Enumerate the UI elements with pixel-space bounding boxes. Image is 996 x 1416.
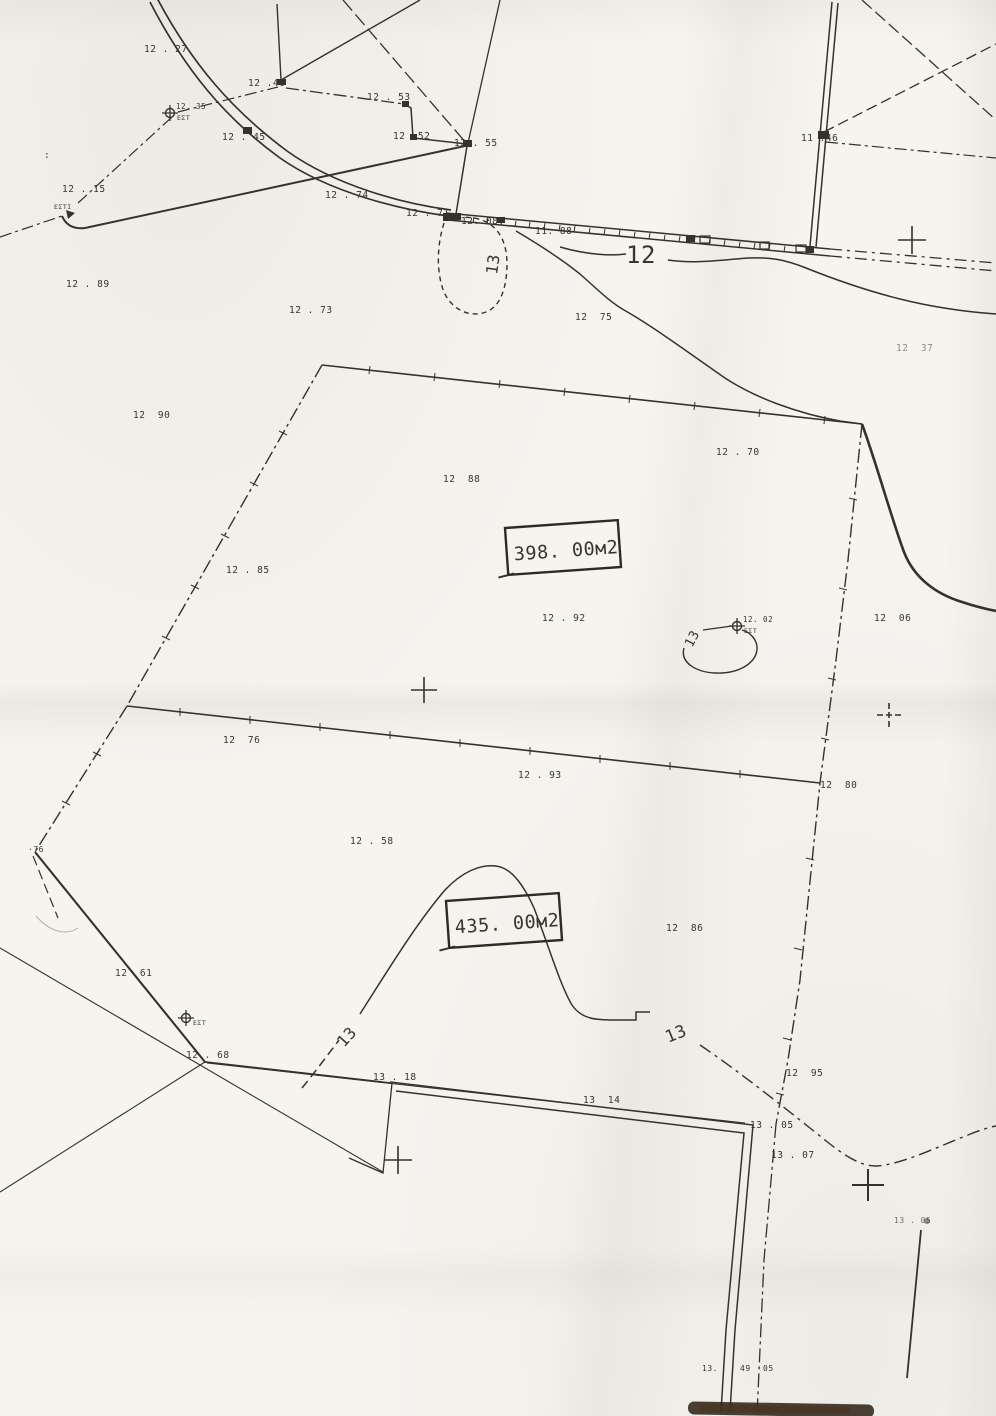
- benchmark-leader: [703, 626, 732, 630]
- elevation-label: 12 . 73: [289, 305, 333, 316]
- elevation-label: 12 06: [874, 613, 911, 624]
- area-box-435: 435. 00м2: [436, 893, 562, 950]
- benchmark-symbol: 12. 35ΕΣΤ: [162, 102, 206, 122]
- area-value-398: 398. 00м2: [513, 537, 619, 565]
- grid-cross-icon: [384, 1146, 412, 1174]
- elevation-label: 12 86: [666, 923, 703, 934]
- junction-arrow: [66, 210, 75, 219]
- scanned-survey-sheet: 398. 00м2 435. 00м2 12 . 2712 .4612 . 53…: [0, 0, 996, 1416]
- elevation-label: 11. 88: [535, 226, 572, 237]
- contour-label: 13: [333, 1023, 361, 1051]
- grid-cross-icon: [411, 677, 437, 703]
- benchmark-cross-icon: [178, 1010, 194, 1026]
- elevation-label: 12 . 89: [66, 279, 110, 290]
- scan-artifact: [688, 1401, 874, 1416]
- benchmark-name: ΕΣΤ: [744, 627, 757, 635]
- middle-line-ticks: [180, 708, 740, 778]
- elevation-label: 13.: [702, 1364, 718, 1373]
- elevation-label: 49: [740, 1364, 751, 1373]
- benchmark-elevation: 12. 35: [176, 102, 206, 111]
- elevation-label: 12. 08: [461, 216, 498, 227]
- main-road: [443, 213, 996, 271]
- generated-annotations: 12 . 2712 .4612 . 5312 .5212 . 5512 . 45…: [28, 44, 933, 1373]
- elevation-label: 12 95: [786, 1068, 823, 1079]
- elevation-label: 12 . 55: [454, 138, 498, 149]
- elevation-label: 12 .52: [393, 131, 430, 142]
- elevation-label: ·76: [28, 845, 44, 854]
- boundary-line-se: [907, 1230, 921, 1378]
- elevation-label: 13 . 18: [373, 1072, 417, 1083]
- contour-label: 13: [482, 253, 504, 276]
- benchmark-elevation: 12. 02: [743, 615, 773, 624]
- grid-cross-icon: [877, 703, 901, 727]
- grid-cross-icon: [852, 1169, 884, 1201]
- elevation-label: 12 . 71: [406, 208, 450, 219]
- elevation-label: 12 . 92: [542, 613, 586, 624]
- elevation-label: 12 . 45: [222, 132, 266, 143]
- elevation-label: 13 14: [583, 1095, 620, 1106]
- elevation-label: 12 . 27: [144, 44, 188, 55]
- survey-plan-drawing: 398. 00м2 435. 00м2 12 . 2712 .4612 . 53…: [0, 0, 996, 1416]
- elevation-label: 12 . 53: [367, 92, 411, 103]
- vertex-marks: [243, 79, 472, 147]
- contour-label: 13: [662, 1021, 689, 1048]
- elevation-label: 12 90: [133, 410, 170, 421]
- elevation-label: ΕΣΤΙ: [54, 203, 72, 211]
- elevation-label: 11 .46: [801, 133, 838, 144]
- left-edge-ticks: [162, 431, 287, 640]
- elevation-label: 13 . 05: [894, 1216, 931, 1225]
- elevation-label: 12 .46: [248, 78, 285, 89]
- northeast-boundary: [810, 0, 996, 247]
- elevation-label: 12 80: [820, 780, 857, 791]
- stream-thick-curve: [862, 424, 996, 611]
- elevation-label: :: [44, 150, 50, 161]
- area-box-398: 398. 00м2: [495, 520, 621, 577]
- elevation-label: 12 88: [443, 474, 480, 485]
- north-boundary-lines: [243, 0, 500, 214]
- elevation-label: 12 . 15: [62, 184, 106, 195]
- benchmark-symbol: ΕΣΤ: [178, 1010, 206, 1027]
- elevation-label: 12 37: [896, 343, 933, 354]
- elevation-label: 12 . 68: [186, 1050, 230, 1061]
- elevation-label: 12 75: [575, 312, 612, 323]
- benchmark-symbol: 12. 02ΕΣΤ: [729, 615, 773, 635]
- contour-label: 13: [682, 628, 703, 650]
- elevation-label: 12 . 85: [226, 565, 270, 576]
- elevation-label: 13 . 05: [750, 1120, 794, 1131]
- benchmark-name: ΕΣΤ: [193, 1019, 206, 1027]
- elevation-label: 12 . 74: [325, 190, 369, 201]
- elevation-label: 12 61: [115, 968, 152, 979]
- elevation-label: 12 76: [223, 735, 260, 746]
- west-junction: [0, 87, 465, 237]
- elevation-label: 13 . 07: [771, 1150, 815, 1161]
- grid-cross-icon: [898, 226, 926, 254]
- benchmark-name: ΕΣΤ: [177, 114, 190, 122]
- elevation-label: 12 . 58: [350, 836, 394, 847]
- right-edge-ticks: [776, 498, 857, 1095]
- elevation-label: 12 . 70: [716, 447, 760, 458]
- elevation-label: 12 . 93: [518, 770, 562, 781]
- contour-label: 12: [626, 241, 656, 269]
- elevation-label: 05: [763, 1364, 774, 1373]
